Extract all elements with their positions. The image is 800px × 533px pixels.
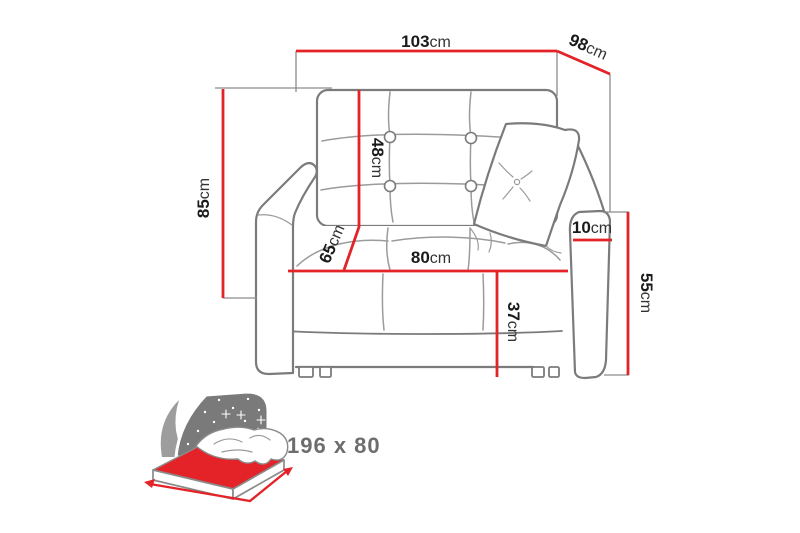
label-seat-height: 37cm — [504, 302, 523, 342]
diagram-canvas: 103cm 98cm 85cm 48cm 65cm 80cm 10cm 55cm… — [0, 0, 800, 533]
sleeping-area-label: 196 x 80 — [287, 433, 381, 458]
sofa-bed-icon: 196 x 80 — [144, 392, 381, 501]
seat-front — [288, 271, 566, 367]
furniture-dimension-diagram: 103cm 98cm 85cm 48cm 65cm 80cm 10cm 55cm… — [0, 0, 800, 533]
tufting-button — [466, 181, 477, 192]
front-seam — [483, 274, 484, 330]
armchair-illustration — [256, 90, 610, 378]
tufting-button — [385, 181, 396, 192]
label-backrest-height: 48cm — [368, 138, 387, 178]
leg — [299, 367, 313, 377]
label-width: 103cm — [401, 32, 451, 51]
label-height: 85cm — [194, 178, 213, 218]
leg — [532, 367, 544, 377]
label-seat-width: 80cm — [411, 248, 451, 267]
leg — [549, 367, 559, 377]
label-armrest-height: 55cm — [637, 273, 656, 313]
leg — [320, 367, 331, 377]
tufting-button — [466, 133, 477, 144]
label-armrest-width: 10cm — [572, 218, 612, 237]
